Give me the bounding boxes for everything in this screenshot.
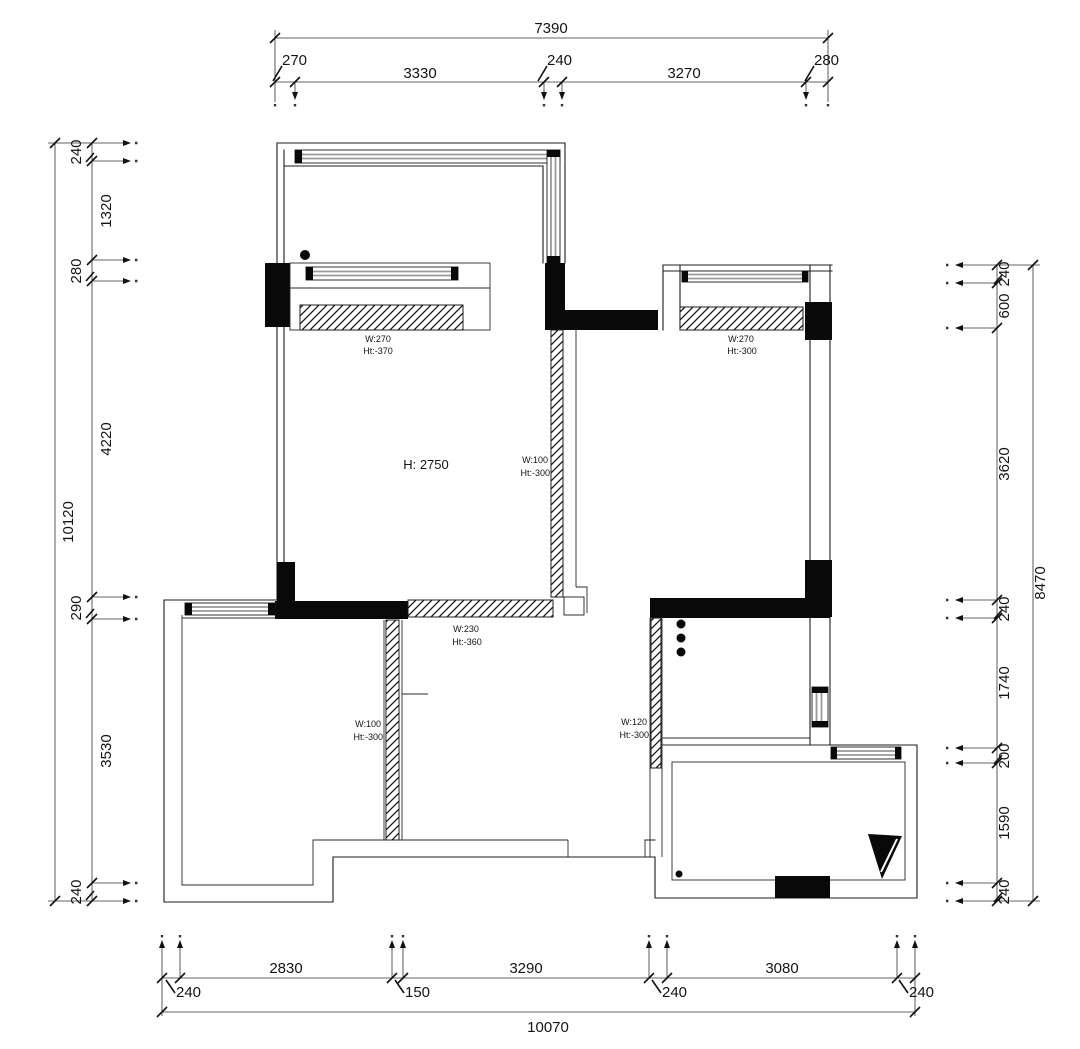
bedroom-window [682, 271, 808, 282]
dim-left-seg-3: 4220 [98, 422, 115, 455]
dimension-bottom: 10070 240 2830 150 3290 240 3080 240 [157, 935, 934, 1036]
dimension-left: 10120 240 1320 280 4220 290 3530 240 [48, 138, 137, 906]
bedroom-sill-hatch-wall [680, 307, 803, 330]
dim-right-seg-3: 240 [996, 596, 1013, 621]
dim-bottom-seg-1: 2830 [269, 960, 302, 977]
solid-wall-north-mid [563, 310, 658, 330]
bedroom-sill-width-label: W:270 [728, 334, 754, 344]
solid-wall-south-left [275, 601, 408, 619]
bedroom2-inner-walls [182, 615, 645, 885]
dim-left-seg-4: 290 [68, 595, 85, 620]
dim-bottom-seg-4: 240 [662, 984, 687, 1001]
dim-top-total: 7390 [534, 20, 567, 37]
dim-top-arrows [292, 92, 809, 100]
sill-window [306, 267, 458, 280]
room-br-window [831, 747, 901, 759]
balcony-window-right [547, 150, 560, 263]
dim-top-seg-2: 240 [547, 52, 572, 69]
dim-top-seg-3: 3270 [667, 65, 700, 82]
mid-partition-wall: W:100 Ht:-300 [520, 330, 587, 613]
dim-left-seg-0: 240 [68, 139, 85, 164]
dim-bottom-seg-2: 150 [405, 984, 430, 1001]
mid-wall-height-label: Ht:-300 [520, 468, 550, 478]
balcony-window-top [295, 150, 560, 163]
dim-right-seg-4: 1740 [996, 666, 1013, 699]
bedroom2-window [185, 603, 275, 615]
mid-wall-line [576, 330, 587, 613]
balcony-living-room: W:270 Ht:-370 H: 2750 [265, 143, 565, 600]
room-br-outer-walls [655, 745, 917, 898]
balcony-sill-hatch-wall [300, 305, 463, 330]
kitchen-wall-width-label: W:120 [621, 717, 647, 727]
dim-right-seg-6: 1590 [996, 806, 1013, 839]
bedroom2-wall-height-label: Ht:-300 [353, 732, 383, 742]
kitchen-hatch-wall [651, 618, 661, 768]
dim-right-total: 8470 [1032, 566, 1049, 599]
mid-hatch-wall [551, 330, 563, 597]
dim-left-seg-6: 240 [68, 879, 85, 904]
balcony-sill-height-label: Ht:-370 [363, 346, 393, 356]
threshold-block [775, 876, 830, 898]
dim-bottom-seg-0: 240 [176, 984, 201, 1001]
mid-wall-width-label: W:100 [522, 455, 548, 465]
kitchen-wall-height-label: Ht:-300 [619, 730, 649, 740]
dim-right-seg-0: 240 [996, 261, 1013, 286]
structural-column-mid [545, 263, 565, 330]
floor-dot-marker [676, 871, 683, 878]
plumbing-dot-3 [677, 648, 686, 657]
dim-right-seg-1: 600 [996, 293, 1013, 318]
dim-bottom-dots [161, 935, 916, 937]
dim-right-arrows [955, 262, 963, 904]
plumbing-dot-2 [677, 634, 686, 643]
dim-bottom-lines [162, 944, 915, 1016]
south-hatch-wall [408, 600, 553, 617]
bedroom2-wall-width-label: W:100 [355, 719, 381, 729]
column-dot-marker [300, 250, 310, 260]
dim-bottom-seg-5: 3080 [765, 960, 798, 977]
dim-left-seg-1: 1320 [98, 194, 115, 227]
dim-bottom-ticks [157, 973, 920, 1017]
dimension-top: 7390 270 3330 240 3270 280 [270, 20, 839, 106]
dim-bottom-arrows [159, 940, 918, 948]
dim-right-dots [946, 264, 948, 902]
dim-right-lines [956, 265, 1040, 901]
bedroom2-outer-walls [164, 600, 655, 902]
balcony-sill-width-label: W:270 [365, 334, 391, 344]
dim-right-seg-7: 240 [996, 879, 1013, 904]
room-height-label: H: 2750 [403, 457, 449, 472]
dim-left-dots [135, 142, 137, 902]
dim-left-seg-2: 280 [68, 258, 85, 283]
room-br-inner-walls [672, 762, 905, 880]
floor-plan-drawing: 7390 270 3330 240 3270 280 10070 240 283… [0, 0, 1080, 1049]
structural-column-sw [277, 562, 295, 602]
dim-left-arrows [123, 140, 131, 904]
dim-bottom-seg-6: 240 [909, 984, 934, 1001]
bedroom-bottom-left: W:100 Ht:-300 [164, 600, 655, 902]
room-bottom-right [655, 745, 917, 898]
dim-top-seg-4: 280 [814, 52, 839, 69]
bedroom-sill-height-label: Ht:-300 [727, 346, 757, 356]
dim-bottom-seg-3: 3290 [509, 960, 542, 977]
floor-plan-canvas: 7390 270 3330 240 3270 280 10070 240 283… [0, 0, 1080, 1049]
dim-top-seg-0: 270 [282, 52, 307, 69]
dim-right-seg-2: 3620 [996, 447, 1013, 480]
plumbing-dot-1 [677, 620, 686, 629]
dim-top-dots [274, 104, 829, 106]
south-wall-height-label: Ht:-360 [452, 637, 482, 647]
balcony-outer-walls [277, 143, 565, 600]
south-wall-width-label: W:230 [453, 624, 479, 634]
wall-junction-stub [564, 597, 584, 615]
bedroom-top-right: W:270 Ht:-300 [563, 265, 832, 745]
kitchen: W:120 Ht:-300 [619, 618, 830, 857]
solid-wall-south-right [650, 598, 830, 618]
bedroom2-hatch-wall [386, 620, 399, 840]
dimension-right: 8470 240 600 3620 240 1740 200 1590 240 [946, 260, 1049, 906]
structural-column-ne [805, 302, 832, 340]
dim-top-seg-1: 3330 [403, 65, 436, 82]
dim-right-seg-5: 200 [996, 743, 1013, 768]
structural-column-left [265, 263, 290, 327]
dim-bottom-total: 10070 [527, 1019, 569, 1036]
dim-left-total: 10120 [60, 501, 77, 543]
dim-left-seg-5: 3530 [98, 734, 115, 767]
